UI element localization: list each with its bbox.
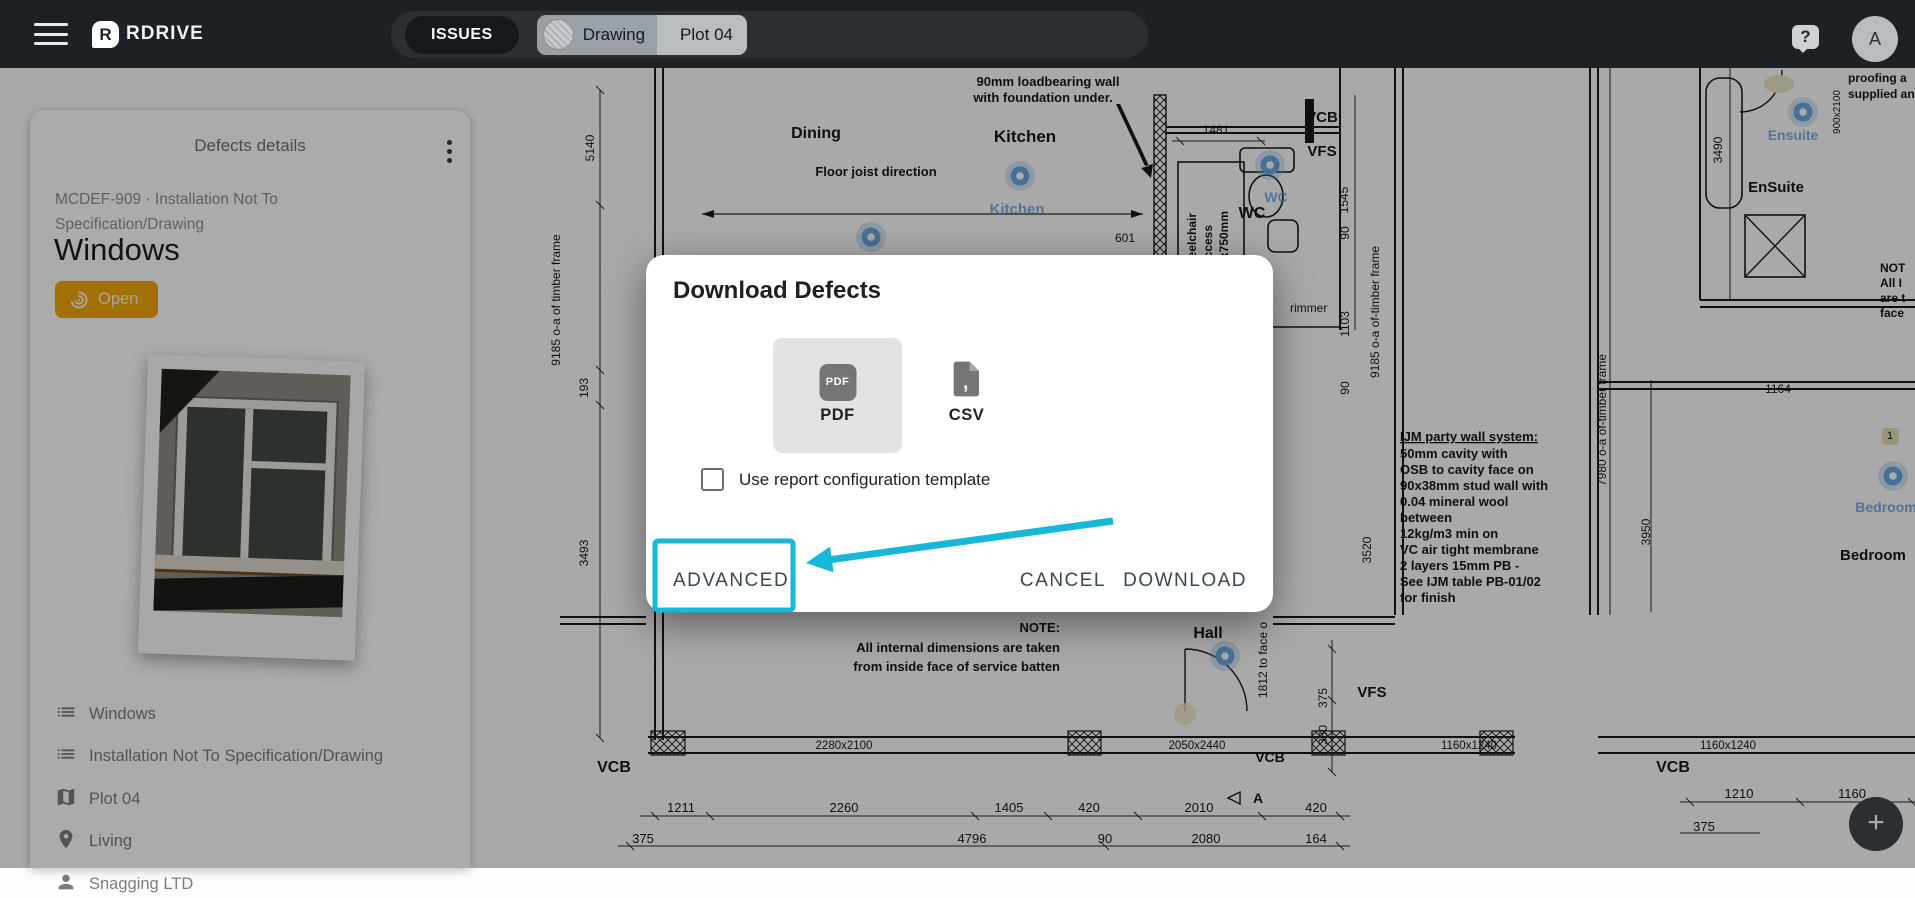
drawing-segment[interactable]: Drawing — [537, 15, 657, 55]
report-template-checkbox-row[interactable]: Use report configuration template — [701, 468, 990, 491]
pdf-file-icon: PDF — [819, 364, 856, 401]
cancel-button[interactable]: CANCEL — [1020, 563, 1106, 599]
format-option-csv[interactable]: , CSV — [902, 338, 1031, 453]
rdrive-logo-icon: R — [92, 21, 119, 48]
brand-name: RDRIVE — [126, 23, 204, 45]
app-bar: R RDRIVE ISSUES Drawing Plot 04 ? A — [0, 0, 1915, 68]
download-defects-dialog: Download Defects PDF PDF , CSV Use repor… — [646, 255, 1273, 612]
dialog-title: Download Defects — [673, 277, 881, 305]
download-button[interactable]: DOWNLOAD — [1123, 563, 1247, 599]
hamburger-menu-icon[interactable] — [34, 21, 68, 47]
help-button[interactable]: ? — [1792, 25, 1819, 49]
checkbox-label: Use report configuration template — [739, 470, 990, 490]
sidebar-item-label: Snagging LTD — [89, 875, 193, 894]
issues-button[interactable]: ISSUES — [405, 16, 519, 54]
format-option-pdf[interactable]: PDF PDF — [773, 338, 902, 453]
company-icon — [55, 871, 77, 898]
plot-segment[interactable]: Plot 04 — [657, 15, 747, 55]
sidebar-item-snagging-ltd[interactable]: Snagging LTD — [55, 871, 193, 897]
pdf-option-label: PDF — [773, 406, 902, 425]
user-avatar[interactable]: A — [1852, 16, 1898, 62]
svg-text:,: , — [962, 371, 968, 393]
drawing-thumbnail — [543, 19, 574, 50]
context-bar: ISSUES Drawing Plot 04 — [391, 11, 1148, 58]
drawing-context-chip[interactable]: Drawing Plot 04 — [537, 15, 747, 55]
checkbox-unchecked[interactable] — [701, 468, 724, 491]
plot-label: Plot 04 — [680, 25, 733, 45]
advanced-button[interactable]: ADVANCED — [673, 563, 789, 599]
drawing-label: Drawing — [583, 25, 645, 45]
csv-option-label: CSV — [902, 406, 1031, 425]
csv-file-icon: , — [951, 360, 983, 398]
brand-logo: R RDRIVE — [92, 21, 204, 48]
